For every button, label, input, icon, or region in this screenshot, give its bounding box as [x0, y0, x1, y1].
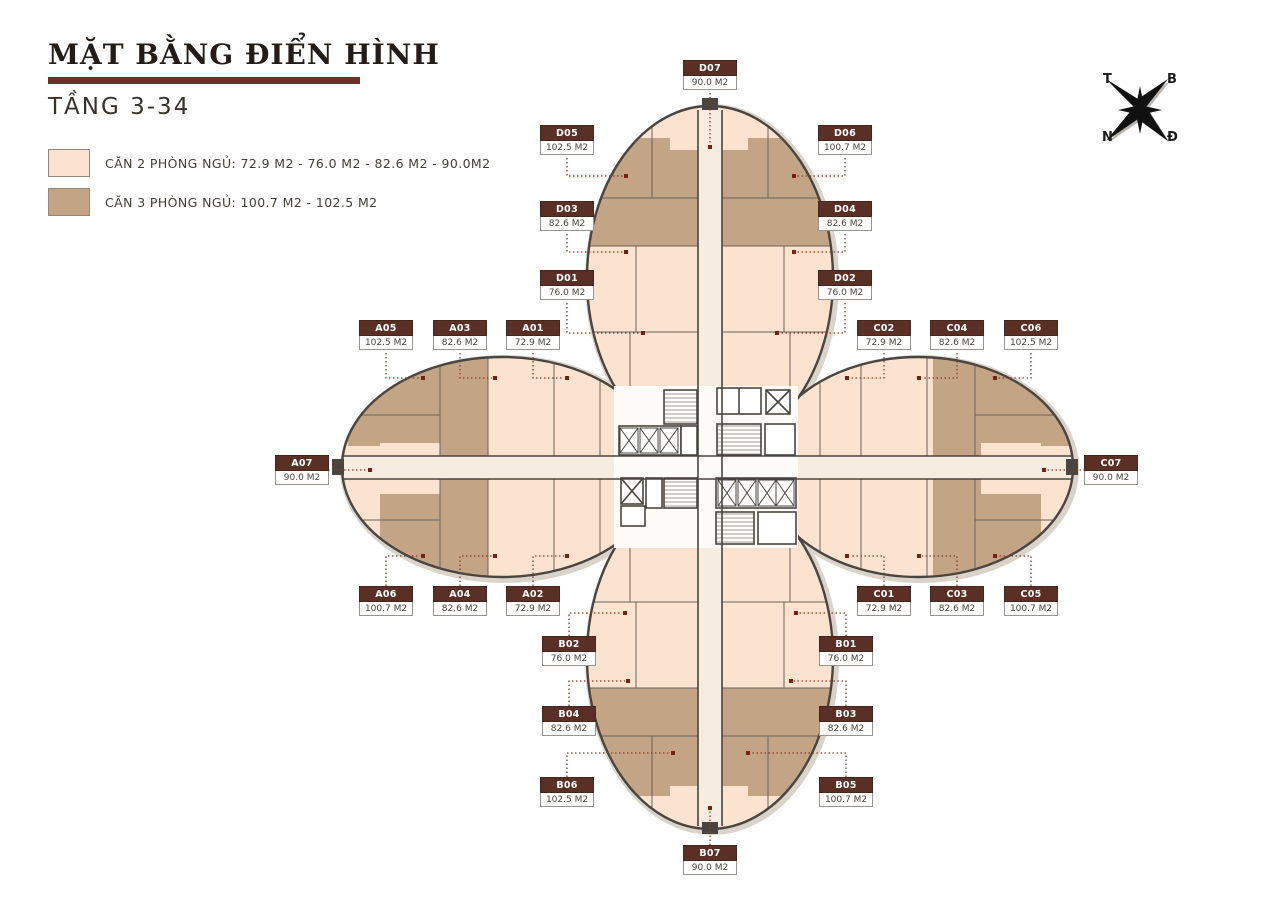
unit-area: 100.7 M2 — [818, 141, 872, 155]
unit-id: A04 — [433, 586, 487, 602]
unit-area: 82.6 M2 — [542, 722, 596, 736]
unit-id: C02 — [857, 320, 911, 336]
unit-callout-b04[interactable]: B04 82.6 M2 — [542, 706, 596, 736]
unit-area: 82.6 M2 — [433, 336, 487, 350]
floor-plan-drawing — [0, 0, 1261, 912]
unit-area: 100.7 M2 — [1004, 602, 1058, 616]
unit-id: B07 — [683, 845, 737, 861]
unit-callout-a05[interactable]: A05 102.5 M2 — [359, 320, 413, 350]
unit-area: 76.0 M2 — [819, 652, 873, 666]
unit-area: 72.9 M2 — [857, 336, 911, 350]
unit-area: 72.9 M2 — [857, 602, 911, 616]
unit-callout-a07[interactable]: A07 90.0 M2 — [275, 455, 329, 485]
unit-callout-b07[interactable]: B07 90.0 M2 — [683, 845, 737, 875]
unit-id: C06 — [1004, 320, 1058, 336]
unit-id: A05 — [359, 320, 413, 336]
unit-callout-d01[interactable]: D01 76.0 M2 — [540, 270, 594, 300]
unit-callout-d07[interactable]: D07 90.0 M2 — [683, 60, 737, 90]
unit-callout-c02[interactable]: C02 72.9 M2 — [857, 320, 911, 350]
unit-id: D04 — [818, 201, 872, 217]
unit-id: D07 — [683, 60, 737, 76]
unit-id: C04 — [930, 320, 984, 336]
unit-callout-a03[interactable]: A03 82.6 M2 — [433, 320, 487, 350]
unit-id: D01 — [540, 270, 594, 286]
unit-area: 100.7 M2 — [819, 793, 873, 807]
unit-area: 90.0 M2 — [683, 861, 737, 875]
unit-area: 100.7 M2 — [359, 602, 413, 616]
unit-id: A01 — [506, 320, 560, 336]
unit-id: D02 — [818, 270, 872, 286]
unit-id: B02 — [542, 636, 596, 652]
unit-callout-b06[interactable]: B06 102.5 M2 — [540, 777, 594, 807]
unit-id: B04 — [542, 706, 596, 722]
unit-id: C07 — [1084, 455, 1138, 471]
unit-callout-b05[interactable]: B05 100.7 M2 — [819, 777, 873, 807]
unit-area: 102.5 M2 — [540, 141, 594, 155]
unit-area: 76.0 M2 — [818, 286, 872, 300]
unit-area: 82.6 M2 — [540, 217, 594, 231]
unit-callout-c06[interactable]: C06 102.5 M2 — [1004, 320, 1058, 350]
floor-plan-page: MẶT BẰNG ĐIỂN HÌNH TẦNG 3-34 CĂN 2 PHÒNG… — [0, 0, 1261, 912]
unit-area: 72.9 M2 — [506, 602, 560, 616]
unit-callout-c04[interactable]: C04 82.6 M2 — [930, 320, 984, 350]
unit-area: 82.6 M2 — [433, 602, 487, 616]
unit-callout-b02[interactable]: B02 76.0 M2 — [542, 636, 596, 666]
unit-callout-c03[interactable]: C03 82.6 M2 — [930, 586, 984, 616]
unit-callout-c01[interactable]: C01 72.9 M2 — [857, 586, 911, 616]
unit-area: 102.5 M2 — [359, 336, 413, 350]
unit-area: 90.0 M2 — [683, 76, 737, 90]
unit-callout-d02[interactable]: D02 76.0 M2 — [818, 270, 872, 300]
unit-id: A07 — [275, 455, 329, 471]
unit-id: D03 — [540, 201, 594, 217]
unit-callout-a02[interactable]: A02 72.9 M2 — [506, 586, 560, 616]
unit-area: 76.0 M2 — [540, 286, 594, 300]
unit-callout-a06[interactable]: A06 100.7 M2 — [359, 586, 413, 616]
unit-callout-c07[interactable]: C07 90.0 M2 — [1084, 455, 1138, 485]
unit-id: C05 — [1004, 586, 1058, 602]
unit-callout-d06[interactable]: D06 100.7 M2 — [818, 125, 872, 155]
unit-id: B05 — [819, 777, 873, 793]
unit-area: 82.6 M2 — [819, 722, 873, 736]
unit-id: C03 — [930, 586, 984, 602]
unit-callout-b03[interactable]: B03 82.6 M2 — [819, 706, 873, 736]
unit-area: 82.6 M2 — [818, 217, 872, 231]
unit-callout-d03[interactable]: D03 82.6 M2 — [540, 201, 594, 231]
unit-id: A02 — [506, 586, 560, 602]
unit-callout-d04[interactable]: D04 82.6 M2 — [818, 201, 872, 231]
unit-id: A03 — [433, 320, 487, 336]
unit-area: 76.0 M2 — [542, 652, 596, 666]
unit-id: B03 — [819, 706, 873, 722]
unit-area: 82.6 M2 — [930, 336, 984, 350]
unit-id: D05 — [540, 125, 594, 141]
unit-area: 90.0 M2 — [1084, 471, 1138, 485]
unit-area: 102.5 M2 — [1004, 336, 1058, 350]
unit-area: 90.0 M2 — [275, 471, 329, 485]
unit-id: B06 — [540, 777, 594, 793]
unit-callout-a04[interactable]: A04 82.6 M2 — [433, 586, 487, 616]
unit-callout-c05[interactable]: C05 100.7 M2 — [1004, 586, 1058, 616]
unit-id: D06 — [818, 125, 872, 141]
unit-area: 102.5 M2 — [540, 793, 594, 807]
unit-id: B01 — [819, 636, 873, 652]
unit-callout-a01[interactable]: A01 72.9 M2 — [506, 320, 560, 350]
unit-id: C01 — [857, 586, 911, 602]
unit-callout-b01[interactable]: B01 76.0 M2 — [819, 636, 873, 666]
unit-id: A06 — [359, 586, 413, 602]
unit-area: 82.6 M2 — [930, 602, 984, 616]
unit-callout-d05[interactable]: D05 102.5 M2 — [540, 125, 594, 155]
unit-area: 72.9 M2 — [506, 336, 560, 350]
